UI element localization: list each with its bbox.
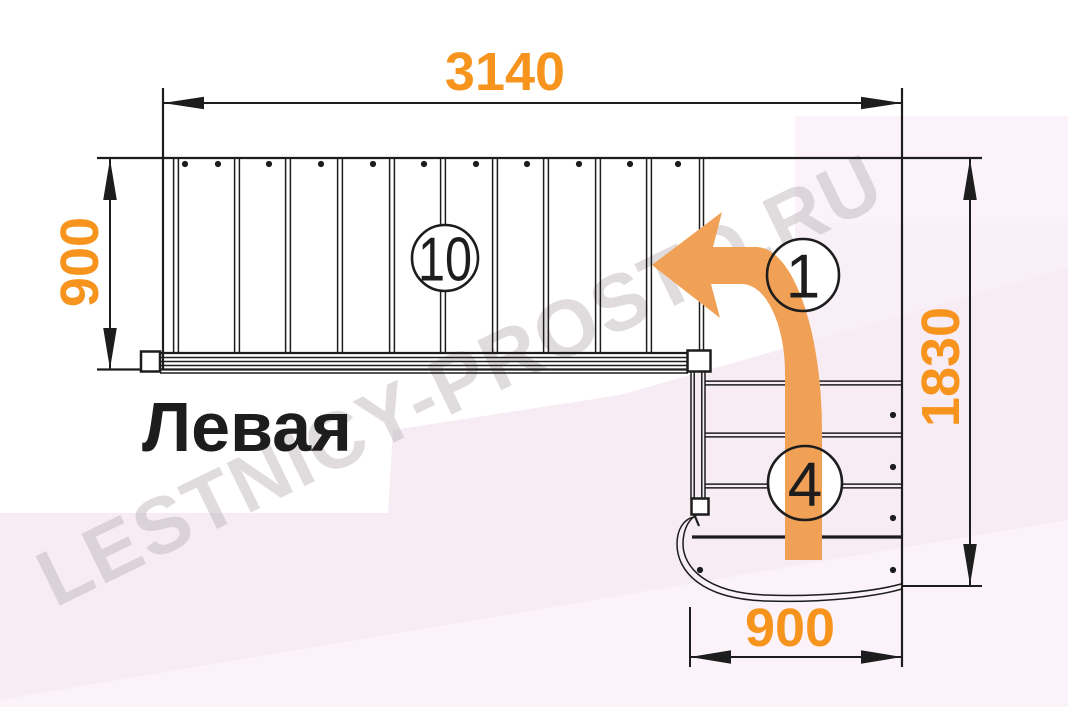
dimension-value-flight-width: 900 [50,217,110,307]
dim-arrowhead [163,97,204,109]
dim-arrowhead [861,97,902,109]
dimension-left-width: 900 [50,159,117,369]
staircase-plan-page: LESTNICY-PROSTO.RU [0,0,1068,707]
post-top-cap [688,351,711,372]
lower-flight-step-count: 4 [788,451,822,520]
dim-arrowhead [103,328,117,369]
dim-arrowhead [103,159,117,200]
dimension-value-total-length: 3140 [445,42,565,102]
turn-step-number: 1 [786,243,820,312]
dimension-value-lower-flight-width: 900 [745,598,835,658]
post-bottom-cap [692,499,709,515]
orientation-label: Левая [142,388,352,466]
dimension-value-total-depth: 1830 [911,307,971,427]
step-count-badge-upper: 10 [412,225,478,295]
dimension-top-length: 3140 [163,42,902,109]
upper-flight-step-count: 10 [418,226,472,295]
staircase-plan-diagram: LESTNICY-PROSTO.RU [0,0,1068,707]
stringer-end-cap [141,352,160,372]
